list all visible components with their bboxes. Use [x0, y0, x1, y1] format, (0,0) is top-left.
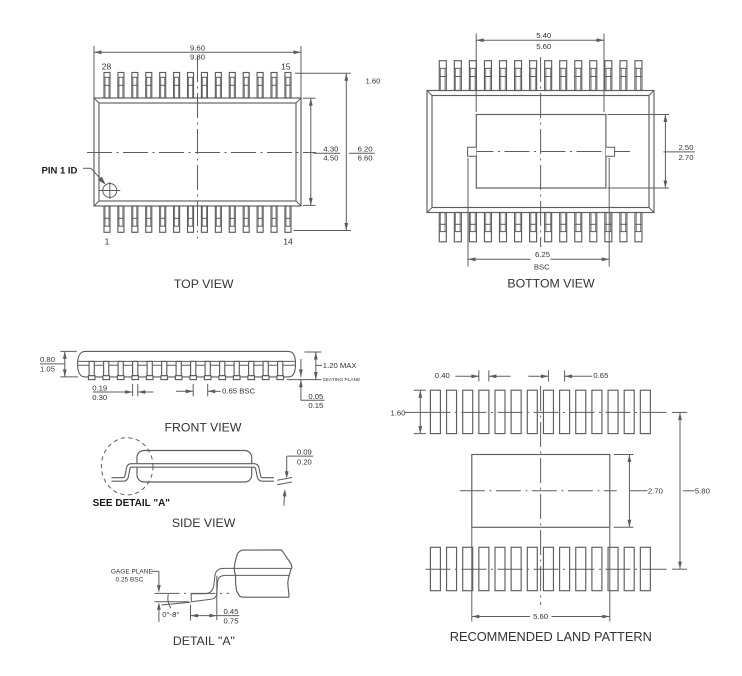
svg-text:9.60: 9.60	[190, 44, 205, 53]
svg-text:BSC: BSC	[534, 263, 550, 272]
svg-text:0.05: 0.05	[308, 392, 323, 401]
svg-text:SIDE VIEW: SIDE VIEW	[172, 516, 236, 530]
svg-text:6.25: 6.25	[535, 250, 550, 259]
svg-text:9.80: 9.80	[190, 53, 205, 62]
svg-text:15: 15	[281, 62, 291, 72]
svg-text:0.45: 0.45	[224, 607, 239, 616]
svg-text:SEATING PLANE: SEATING PLANE	[323, 377, 361, 383]
svg-text:6.20: 6.20	[358, 145, 373, 154]
svg-text:1.05: 1.05	[40, 364, 55, 373]
svg-text:1.60: 1.60	[391, 408, 406, 417]
svg-text:SEE DETAIL "A": SEE DETAIL "A"	[93, 498, 171, 509]
svg-text:4.30: 4.30	[323, 145, 338, 154]
svg-text:0°-8°: 0°-8°	[162, 610, 179, 619]
svg-text:DETAIL "A": DETAIL "A"	[173, 634, 235, 648]
svg-text:0.65: 0.65	[593, 371, 608, 380]
svg-text:GAGE PLANE: GAGE PLANE	[111, 569, 154, 576]
svg-text:0.09: 0.09	[297, 448, 312, 457]
svg-text:2.50: 2.50	[679, 143, 694, 152]
svg-text:0.75: 0.75	[224, 617, 239, 626]
svg-text:4.50: 4.50	[323, 154, 338, 163]
svg-text:1.20 MAX: 1.20 MAX	[323, 361, 357, 370]
svg-text:TOP VIEW: TOP VIEW	[174, 277, 234, 291]
svg-text:0.20: 0.20	[297, 458, 312, 467]
svg-text:5.60: 5.60	[533, 612, 548, 621]
svg-text:BOTTOM VIEW: BOTTOM VIEW	[507, 277, 595, 291]
svg-text:0.15: 0.15	[308, 401, 323, 410]
svg-text:0.19: 0.19	[92, 383, 107, 392]
svg-text:0.30: 0.30	[92, 393, 107, 402]
svg-text:0.40: 0.40	[435, 371, 450, 380]
svg-text:RECOMMENDED LAND PATTERN: RECOMMENDED LAND PATTERN	[450, 629, 652, 644]
svg-text:5.60: 5.60	[536, 42, 551, 51]
svg-text:PIN 1 ID: PIN 1 ID	[42, 166, 78, 177]
svg-text:14: 14	[283, 237, 293, 247]
svg-text:1.60: 1.60	[366, 77, 381, 86]
svg-text:0.80: 0.80	[40, 355, 55, 364]
svg-text:2.70: 2.70	[648, 486, 663, 495]
svg-text:2.70: 2.70	[679, 153, 694, 162]
svg-text:0.65 BSC: 0.65 BSC	[222, 387, 255, 396]
svg-text:28: 28	[102, 62, 112, 72]
svg-text:6.60: 6.60	[358, 154, 373, 163]
svg-text:1: 1	[105, 237, 110, 247]
svg-text:FRONT VIEW: FRONT VIEW	[165, 421, 242, 435]
svg-text:5.40: 5.40	[536, 31, 551, 40]
svg-text:5.80: 5.80	[695, 486, 710, 495]
svg-text:0.25 BSC: 0.25 BSC	[116, 577, 144, 584]
